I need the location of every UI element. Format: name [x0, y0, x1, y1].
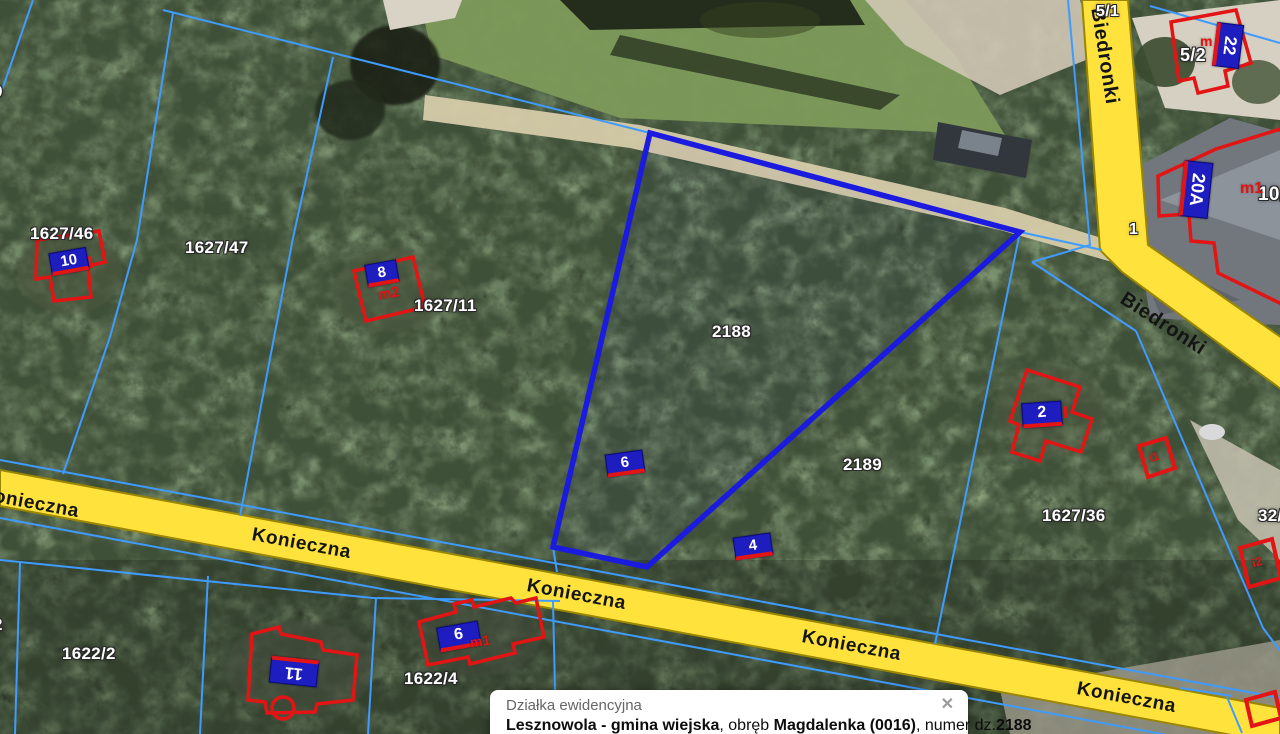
popup-text-2: , numer dz. — [916, 717, 996, 734]
address-plate-11: 11 — [269, 656, 320, 688]
building-mark-m1-6: m1 — [469, 632, 491, 651]
map-viewport[interactable]: Konieczna Konieczna Konieczna Konieczna … — [0, 0, 1280, 734]
popup-parcel-info: Lesznowola - gmina wiejska, obręb Magdal… — [506, 717, 954, 734]
popup-title: Działka ewidencyjna — [506, 697, 642, 714]
parcel-label-1627-11: 1627/11 — [414, 296, 477, 316]
parcel-label-32-cut: 32/ — [1258, 506, 1280, 526]
address-plate-22: 22 — [1212, 22, 1244, 69]
address-plate-20a: 20A — [1179, 160, 1214, 219]
parcel-label-9-cut: 9 — [0, 82, 3, 102]
building-mark-m1-20a: m1 — [1240, 180, 1263, 198]
parcel-label-1622-2: 1622/2 — [62, 644, 116, 664]
parcel-label-1627-46: 1627/46 — [30, 224, 94, 244]
popup-text-1: , obręb — [719, 717, 773, 734]
parcel-label-1: 1 — [1129, 221, 1138, 239]
parcel-label-2188: 2188 — [712, 322, 751, 342]
map-canvas — [0, 0, 1280, 734]
popup-district: Magdalenka (0016) — [774, 717, 916, 734]
parcel-label-1627-36: 1627/36 — [1042, 506, 1106, 526]
popup-commune: Lesznowola - gmina wiejska — [506, 717, 719, 734]
parcel-label-1627-47: 1627/47 — [185, 238, 249, 258]
parcel-label-2-cut: 2 — [0, 615, 3, 635]
address-plate-2: 2 — [1021, 401, 1063, 429]
popup-parcel-number: 2188 — [996, 717, 1032, 734]
parcel-label-2189: 2189 — [843, 455, 882, 475]
close-icon[interactable]: ✕ — [941, 697, 954, 713]
parcel-info-popup: Działka ewidencyjna ✕ Lesznowola - gmina… — [490, 690, 968, 734]
building-mark-m: m — [1200, 33, 1212, 49]
parcel-label-5-1: 5/1 — [1096, 3, 1119, 21]
parcel-label-1622-4: 1622/4 — [404, 669, 458, 689]
